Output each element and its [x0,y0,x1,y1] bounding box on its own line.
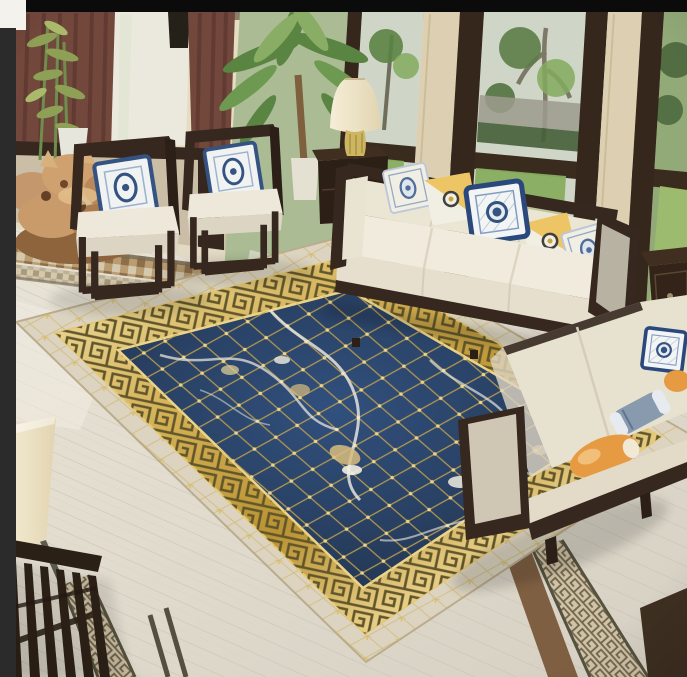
top-letterbox-bar [26,0,687,12]
screenshot-root: Living room photo: navy blue and gold Gr… [0,0,687,677]
living-room-photo [0,0,687,677]
top-left-corner [0,0,26,30]
left-letterbox-strip [0,28,16,677]
vignette [13,12,687,677]
